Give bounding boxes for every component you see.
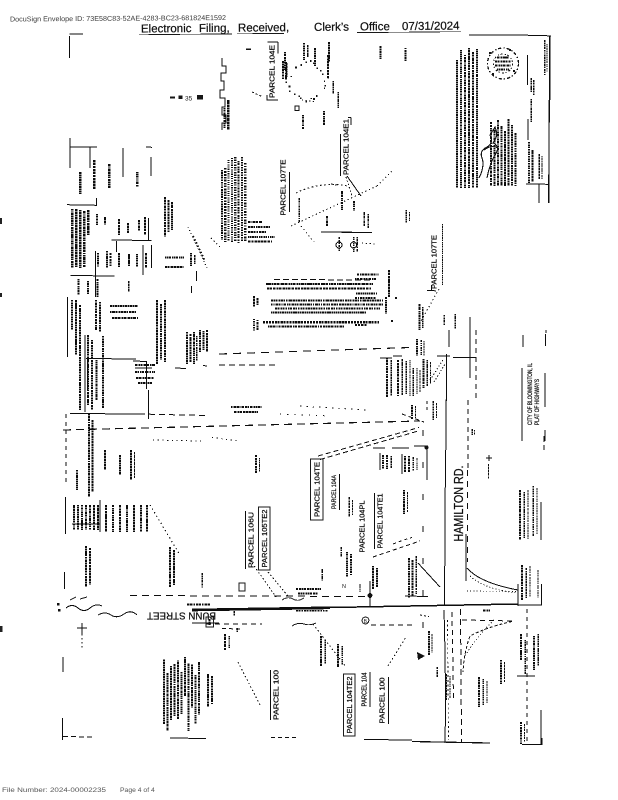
svg-text:CITY OF BLOOMINGTON, IL: CITY OF BLOOMINGTON, IL	[527, 363, 534, 425]
svg-text:Electronic: Electronic	[141, 23, 192, 35]
svg-text:HAMILTON RD.: HAMILTON RD.	[451, 466, 466, 542]
svg-text:PARCEL 104PL: PARCEL 104PL	[358, 501, 367, 553]
svg-text:PARCEL 104A: PARCEL 104A	[331, 475, 338, 509]
svg-text:Filing,: Filing,	[199, 23, 230, 35]
svg-text:PLAT OF HIGHWAYS: PLAT OF HIGHWAYS	[534, 379, 541, 425]
svg-text:Received,: Received,	[238, 22, 289, 34]
svg-text:PARCEL 106U: PARCEL 106U	[247, 512, 256, 568]
svg-text:PARCEL 104TE1: PARCEL 104TE1	[376, 494, 385, 549]
svg-text:File Number: 2024-00002235: File Number: 2024-00002235	[2, 787, 106, 794]
svg-text:07/31/2024: 07/31/2024	[402, 20, 460, 33]
svg-text:PARCEL 104: PARCEL 104	[360, 673, 369, 707]
svg-text:PARCEL 100: PARCEL 100	[272, 670, 281, 720]
svg-text:PARCEL 105TE2: PARCEL 105TE2	[260, 510, 269, 568]
svg-text:PARCEL 107TE: PARCEL 107TE	[279, 159, 288, 215]
svg-text:PARCEL 104TE: PARCEL 104TE	[312, 462, 321, 517]
svg-text:PARCEL 104E: PARCEL 104E	[267, 45, 276, 98]
svg-text:N: N	[342, 584, 346, 590]
svg-text:Page 4 of 4: Page 4 of 4	[120, 787, 155, 794]
svg-text:PARCEL 107TE: PARCEL 107TE	[430, 235, 439, 289]
svg-text:DocuSign Envelope ID: 73E58C83: DocuSign Envelope ID: 73E58C83-52AE-4283…	[10, 15, 226, 24]
svg-text:PARCEL 100: PARCEL 100	[378, 678, 387, 724]
svg-text:Office: Office	[360, 21, 390, 33]
svg-text:PARCEL 104TE2: PARCEL 104TE2	[345, 677, 354, 734]
svg-text:Clerk’s: Clerk’s	[314, 22, 349, 34]
svg-text:35: 35	[185, 96, 193, 103]
svg-text:PARCEL 104E1: PARCEL 104E1	[341, 119, 350, 175]
